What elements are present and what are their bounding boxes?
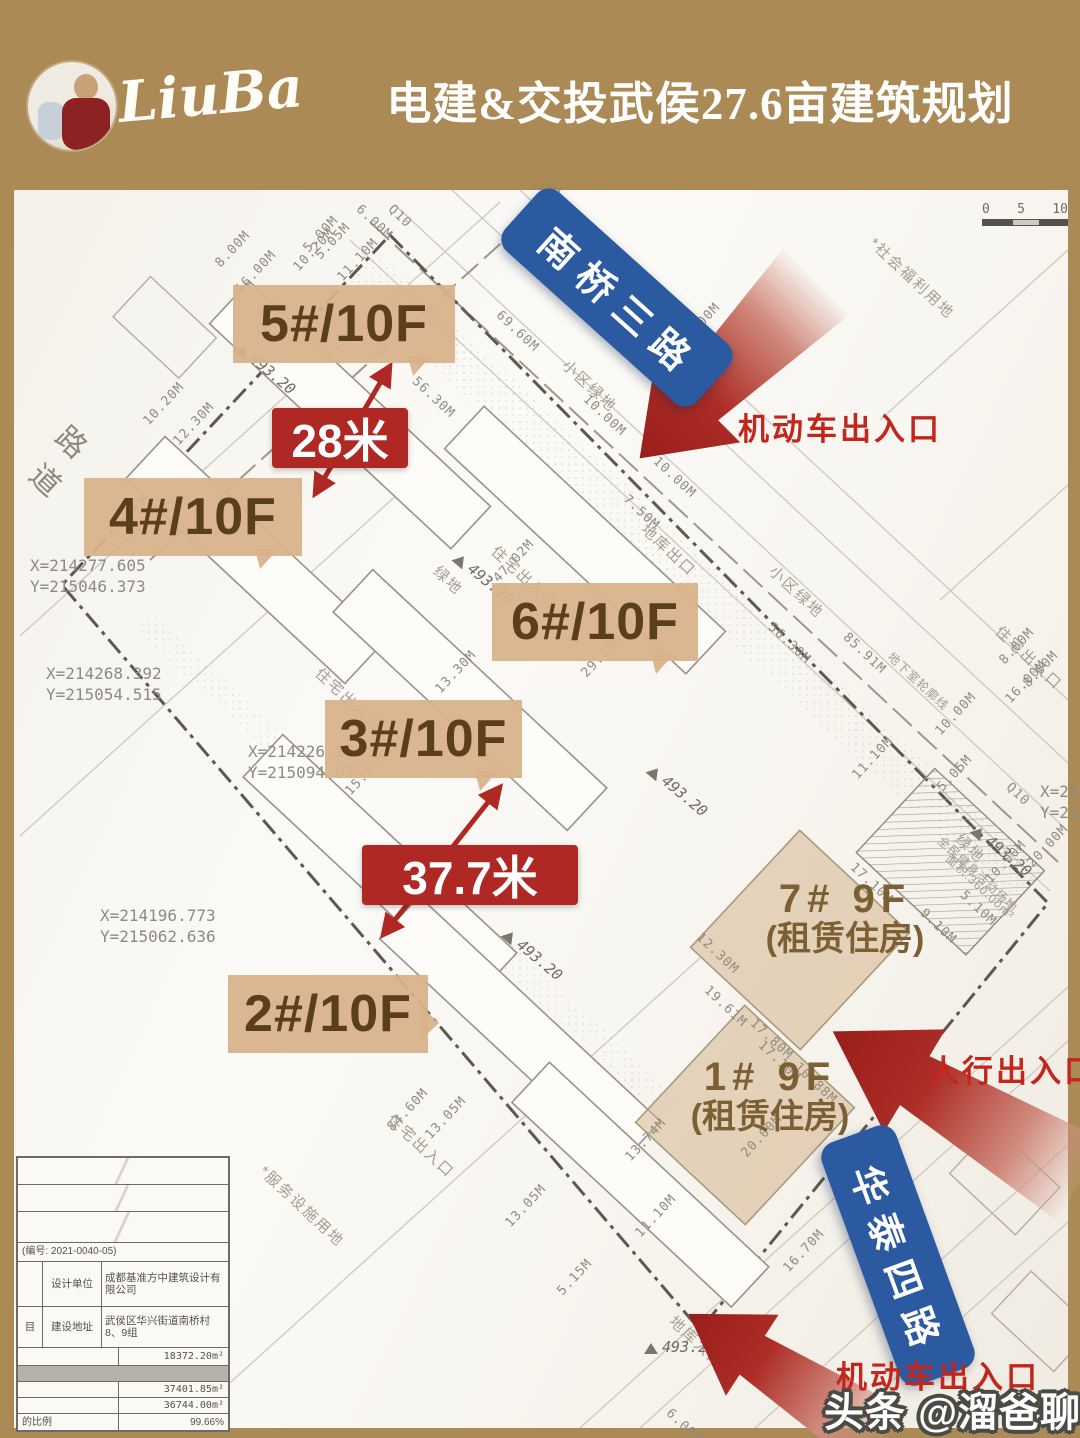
site-plan-map [14, 190, 1068, 1428]
header: LiuBa 电建&交投武侯27.6亩建筑规划 [0, 0, 1080, 190]
infographic-page: LiuBa 电建&交投武侯27.6亩建筑规划 [0, 0, 1080, 1438]
logo-text: LiuBa [115, 54, 305, 136]
page-title: 电建&交投武侯27.6亩建筑规划 [330, 80, 1070, 130]
avatar-person-body [62, 98, 110, 150]
avatar-person-head [74, 74, 98, 100]
blueprint-background [14, 190, 1068, 1428]
avatar [28, 62, 116, 150]
avatar-child-figure [38, 102, 64, 140]
